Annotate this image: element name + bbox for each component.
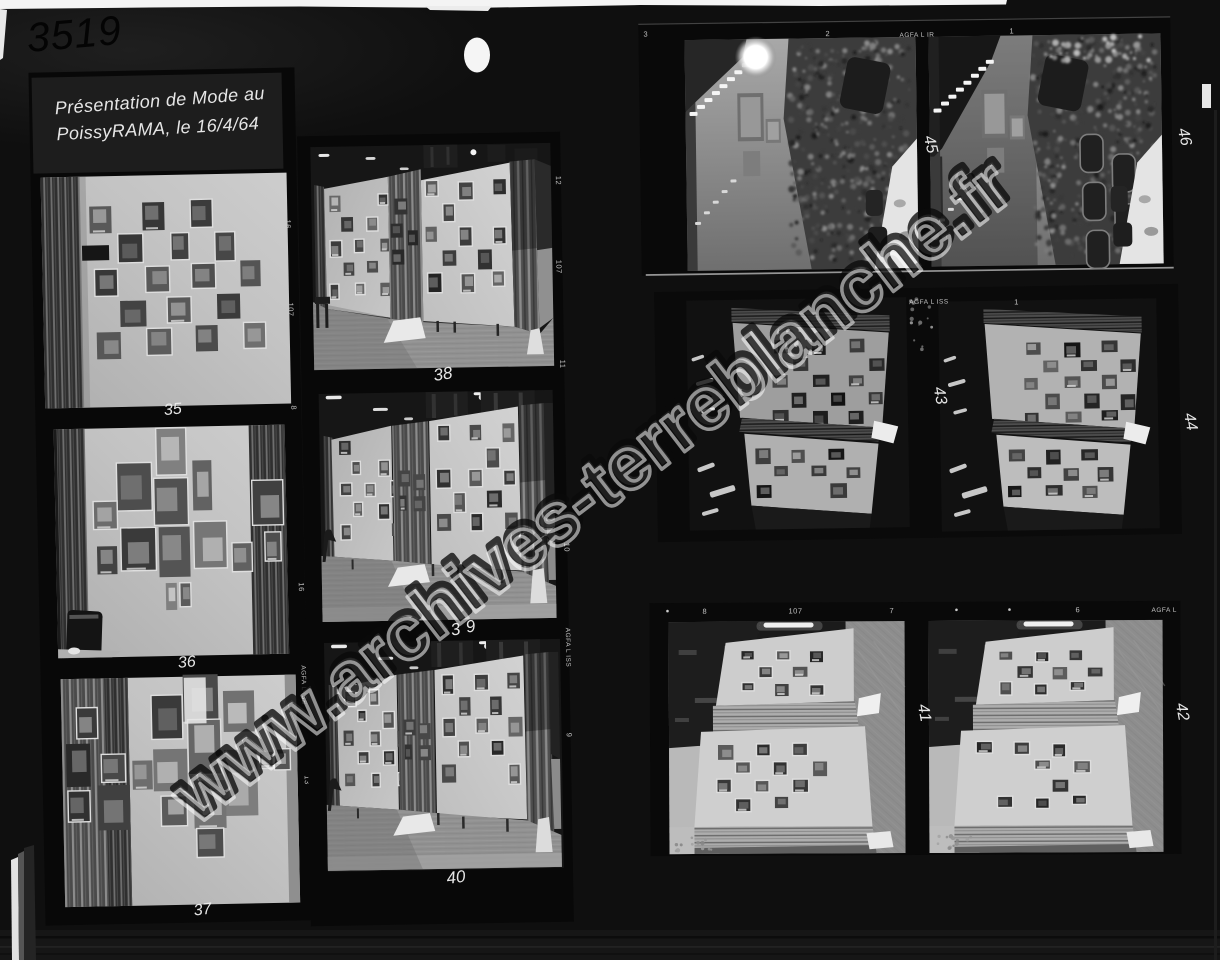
- svg-text:AGFA L IR: AGFA L IR: [899, 32, 934, 39]
- svg-text:16: 16: [283, 219, 292, 229]
- svg-text:36: 36: [177, 653, 196, 672]
- svg-text:107: 107: [788, 606, 802, 615]
- svg-text:37: 37: [193, 900, 214, 919]
- svg-text:40: 40: [445, 867, 467, 888]
- svg-text:107: 107: [286, 302, 295, 316]
- svg-text:9: 9: [565, 733, 574, 738]
- svg-text:AGFA L ISS: AGFA L ISS: [564, 628, 572, 668]
- svg-text:11: 11: [558, 360, 567, 369]
- svg-text:107: 107: [554, 260, 563, 274]
- svg-text:7: 7: [889, 606, 894, 615]
- svg-text:42: 42: [1172, 702, 1192, 723]
- svg-text:41: 41: [914, 703, 934, 724]
- svg-text:8: 8: [289, 405, 298, 410]
- svg-text:AGFA L: AGFA L: [1151, 607, 1176, 614]
- svg-text:3: 3: [643, 30, 648, 39]
- svg-text:1: 1: [1014, 297, 1019, 306]
- svg-text:12: 12: [554, 176, 563, 185]
- svg-text:44: 44: [1180, 411, 1200, 432]
- svg-text:AGFA L ISS: AGFA L ISS: [909, 299, 949, 307]
- svg-text:3519: 3519: [25, 7, 124, 61]
- svg-text:35: 35: [163, 401, 182, 420]
- svg-text:38: 38: [432, 363, 454, 385]
- svg-text:16: 16: [297, 582, 306, 592]
- svg-text:8: 8: [702, 607, 707, 616]
- svg-text:1: 1: [1009, 26, 1014, 35]
- svg-text:2: 2: [825, 29, 830, 38]
- svg-text:6: 6: [1075, 605, 1080, 614]
- svg-text:43: 43: [930, 385, 950, 406]
